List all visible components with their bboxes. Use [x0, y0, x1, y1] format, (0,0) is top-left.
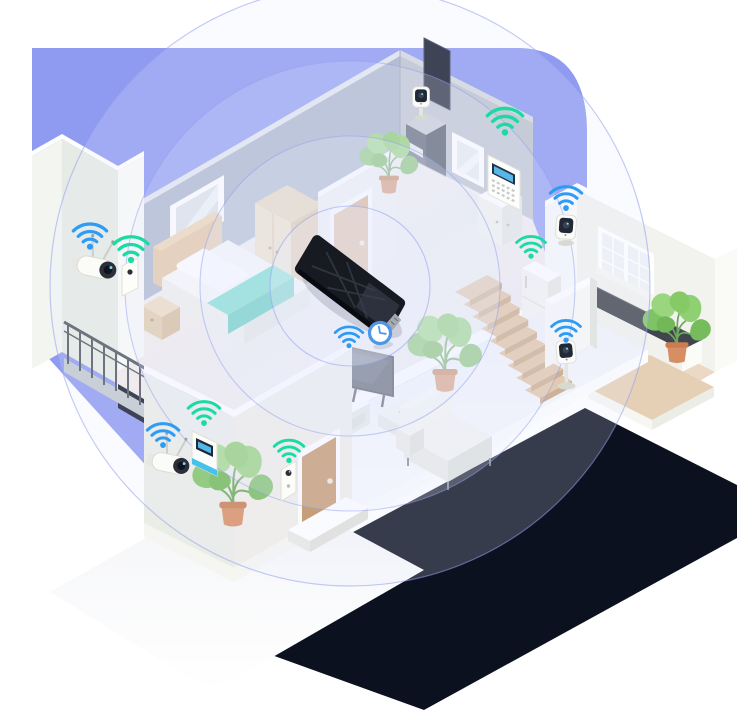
- kitchen-right-wall: [715, 248, 737, 372]
- smart-home-illustration: [0, 0, 740, 720]
